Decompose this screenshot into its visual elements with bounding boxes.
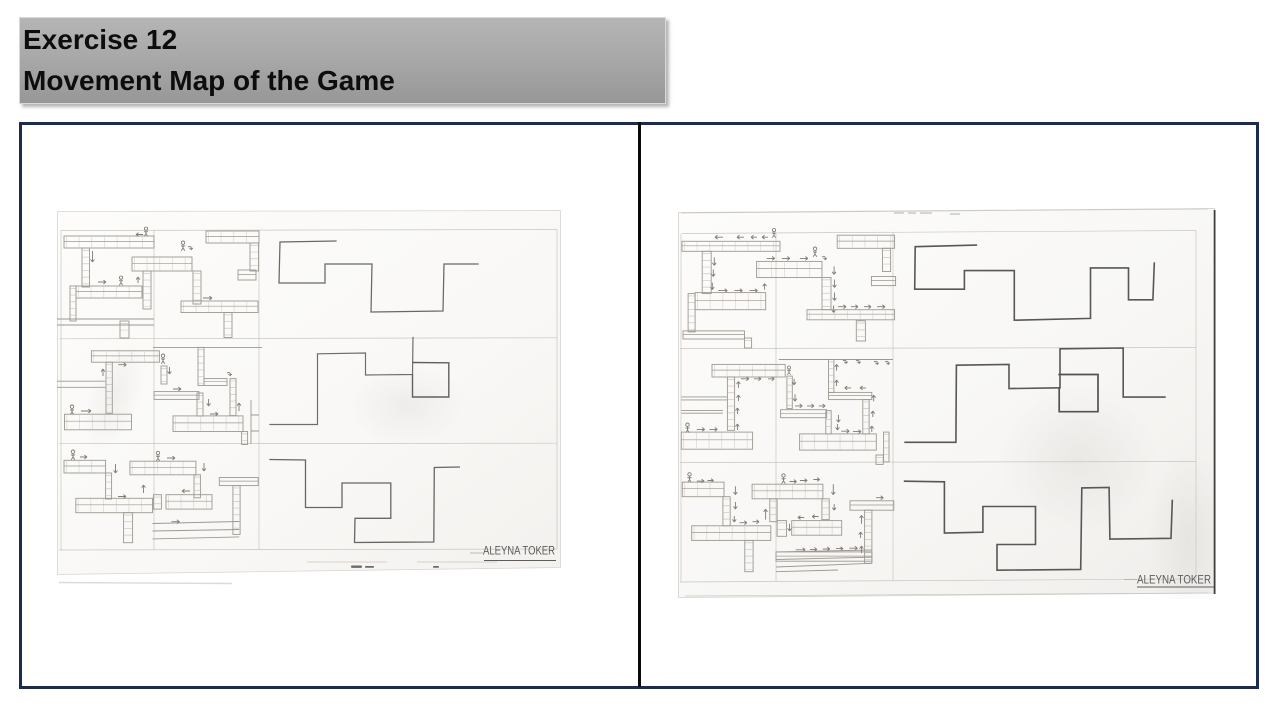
svg-text:ALEYNA TOKER: ALEYNA TOKER xyxy=(1137,573,1211,587)
svg-text:ALEYNA TOKER: ALEYNA TOKER xyxy=(483,544,555,558)
